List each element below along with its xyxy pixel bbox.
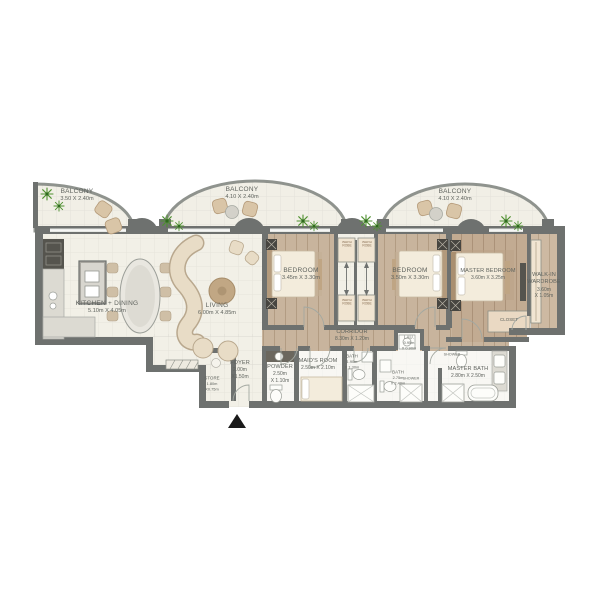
room-name: MASTER BATH xyxy=(448,366,488,373)
room-name: WARDROBE xyxy=(527,279,561,286)
shower-text: SHOWER xyxy=(444,353,461,357)
shower-label: SHOWER xyxy=(444,353,461,357)
wardrobe-label: WARD ROBE xyxy=(338,299,355,312)
room-dims: 2.50m X 2.10m xyxy=(299,365,338,372)
room-dims: X1.50m xyxy=(230,374,250,381)
room-dims: 2.00m xyxy=(230,367,250,374)
wardrobe-label: WARD ROBE xyxy=(338,241,355,254)
balcony-left-label: BALCONY 3.50 X 2.40m xyxy=(60,188,93,204)
room-dims: X 2.40m xyxy=(391,381,406,386)
room-dims: 4.10 X 2.40m xyxy=(438,196,471,203)
armchair xyxy=(193,338,213,358)
wardrobe-label: WARD ROBE xyxy=(358,299,375,312)
room-dims: 3.60m X 3.25m xyxy=(460,275,515,282)
room-dims: X0.75m xyxy=(204,387,219,392)
room-name: KITCHEN + DINING xyxy=(76,300,139,308)
bedroom1-label: BEDROOM 3.45m X 3.30m xyxy=(282,267,320,283)
kitchen-label: KITCHEN + DINING 5.10m X 4.05m xyxy=(76,300,139,316)
floor-plan: BALCONY 3.50 X 2.40m BALCONY 4.10 X 2.40… xyxy=(0,0,600,600)
room-dims: 3.50 X 2.40m xyxy=(60,196,93,203)
wardrobe-label: WARD ROBE xyxy=(358,241,375,254)
living-label: LIVING 6.00m X 4.85m xyxy=(198,302,236,318)
corridor-label: CORRIDOR 8.30m X 1.20m xyxy=(335,329,369,343)
room-name: BALCONY xyxy=(60,188,93,196)
room-name: MASTER BEDROOM xyxy=(460,268,515,275)
room-dims: 6.00m X 4.85m xyxy=(198,310,236,317)
bedroom2-label: BEDROOM 3.50m X 3.30m xyxy=(391,267,429,283)
closet-label: CLOSET xyxy=(500,318,518,324)
room-dims: X 1.10m xyxy=(267,378,293,385)
tv-unit xyxy=(520,263,526,301)
room-name: CLOSET xyxy=(500,318,518,324)
room-name: MAID'S ROOM xyxy=(299,358,338,365)
room-name: BALCONY xyxy=(225,186,258,194)
maids-room-label: MAID'S ROOM 2.50m X 2.10m xyxy=(299,358,338,372)
room-dims: X 1.30m xyxy=(345,365,360,370)
room-dims: 4.10 X 2.40m xyxy=(225,194,258,201)
wardrobe-text: WARD ROBE xyxy=(361,241,372,248)
walkin-wardrobe-label: WALK-IN WARDROBE 3.60m X 1.05m xyxy=(527,272,561,300)
room-name: FOYER xyxy=(230,360,250,367)
room-name: BEDROOM xyxy=(391,267,429,275)
store-label: STORE 1.80m X0.75m xyxy=(204,376,219,392)
room-dims: 3.45m X 3.30m xyxy=(282,275,320,282)
room-dims: 5.10m X 4.05m xyxy=(76,308,139,315)
balcony-edge-wall xyxy=(33,182,38,228)
balcony-center-label: BALCONY 4.10 X 2.40m xyxy=(225,186,258,202)
wardrobe-text: WARD ROBE xyxy=(361,299,372,306)
room-dims: X 0.90m xyxy=(402,346,417,351)
room-name: POWDER xyxy=(267,364,293,371)
armchair xyxy=(218,341,238,361)
room-name: LIVING xyxy=(198,302,236,310)
room-dims: 8.30m X 1.20m xyxy=(335,336,369,343)
room-dims: 3.50m X 3.30m xyxy=(391,275,429,282)
room-name: BALCONY xyxy=(438,188,471,196)
entrance-arrow xyxy=(228,414,246,428)
laundry-label: LAU. 0.95m X 0.90m xyxy=(402,335,417,351)
room-name: CORRIDOR xyxy=(335,329,369,336)
powder-label: POWDER 2.50m X 1.10m xyxy=(267,364,293,384)
balcony-right-label: BALCONY 4.10 X 2.40m xyxy=(438,188,471,204)
master-bedroom-label: MASTER BEDROOM 3.60m X 3.25m xyxy=(460,268,515,282)
foyer-label: FOYER 2.00m X1.50m xyxy=(230,360,250,380)
bath1-label: BATH 1.90m X 1.30m xyxy=(345,354,360,370)
wardrobe-text: WARD ROBE xyxy=(341,299,352,306)
room-dims: X 1.05m xyxy=(527,293,561,300)
wardrobe-text: WARD ROBE xyxy=(341,241,352,248)
room-name: WALK-IN xyxy=(527,272,561,279)
room-dims: 2.80m X 2.50m xyxy=(448,373,488,380)
room-name: BEDROOM xyxy=(282,267,320,275)
master-bath-label: MASTER BATH 2.80m X 2.50m xyxy=(448,366,488,380)
shower-text: SHOWER xyxy=(403,377,420,381)
shower-label: SHOWER xyxy=(403,377,420,381)
bathtub xyxy=(468,385,498,401)
